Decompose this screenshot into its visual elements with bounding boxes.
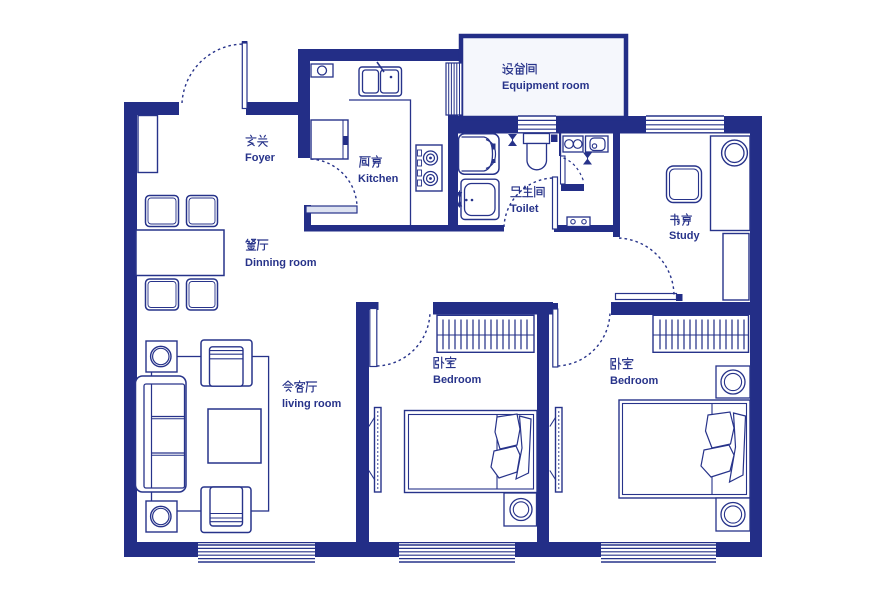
svg-text:Foyer: Foyer — [245, 152, 276, 164]
svg-text:Kitchen: Kitchen — [358, 173, 399, 185]
svg-text:Bedroom: Bedroom — [433, 374, 482, 386]
svg-text:Equipment room: Equipment room — [502, 80, 590, 92]
svg-text:Bedroom: Bedroom — [610, 375, 659, 387]
svg-text:Study: Study — [669, 230, 700, 242]
svg-text:living room: living room — [282, 398, 342, 410]
svg-text:Dinning room: Dinning room — [245, 257, 317, 269]
svg-text:Toilet: Toilet — [510, 203, 539, 215]
